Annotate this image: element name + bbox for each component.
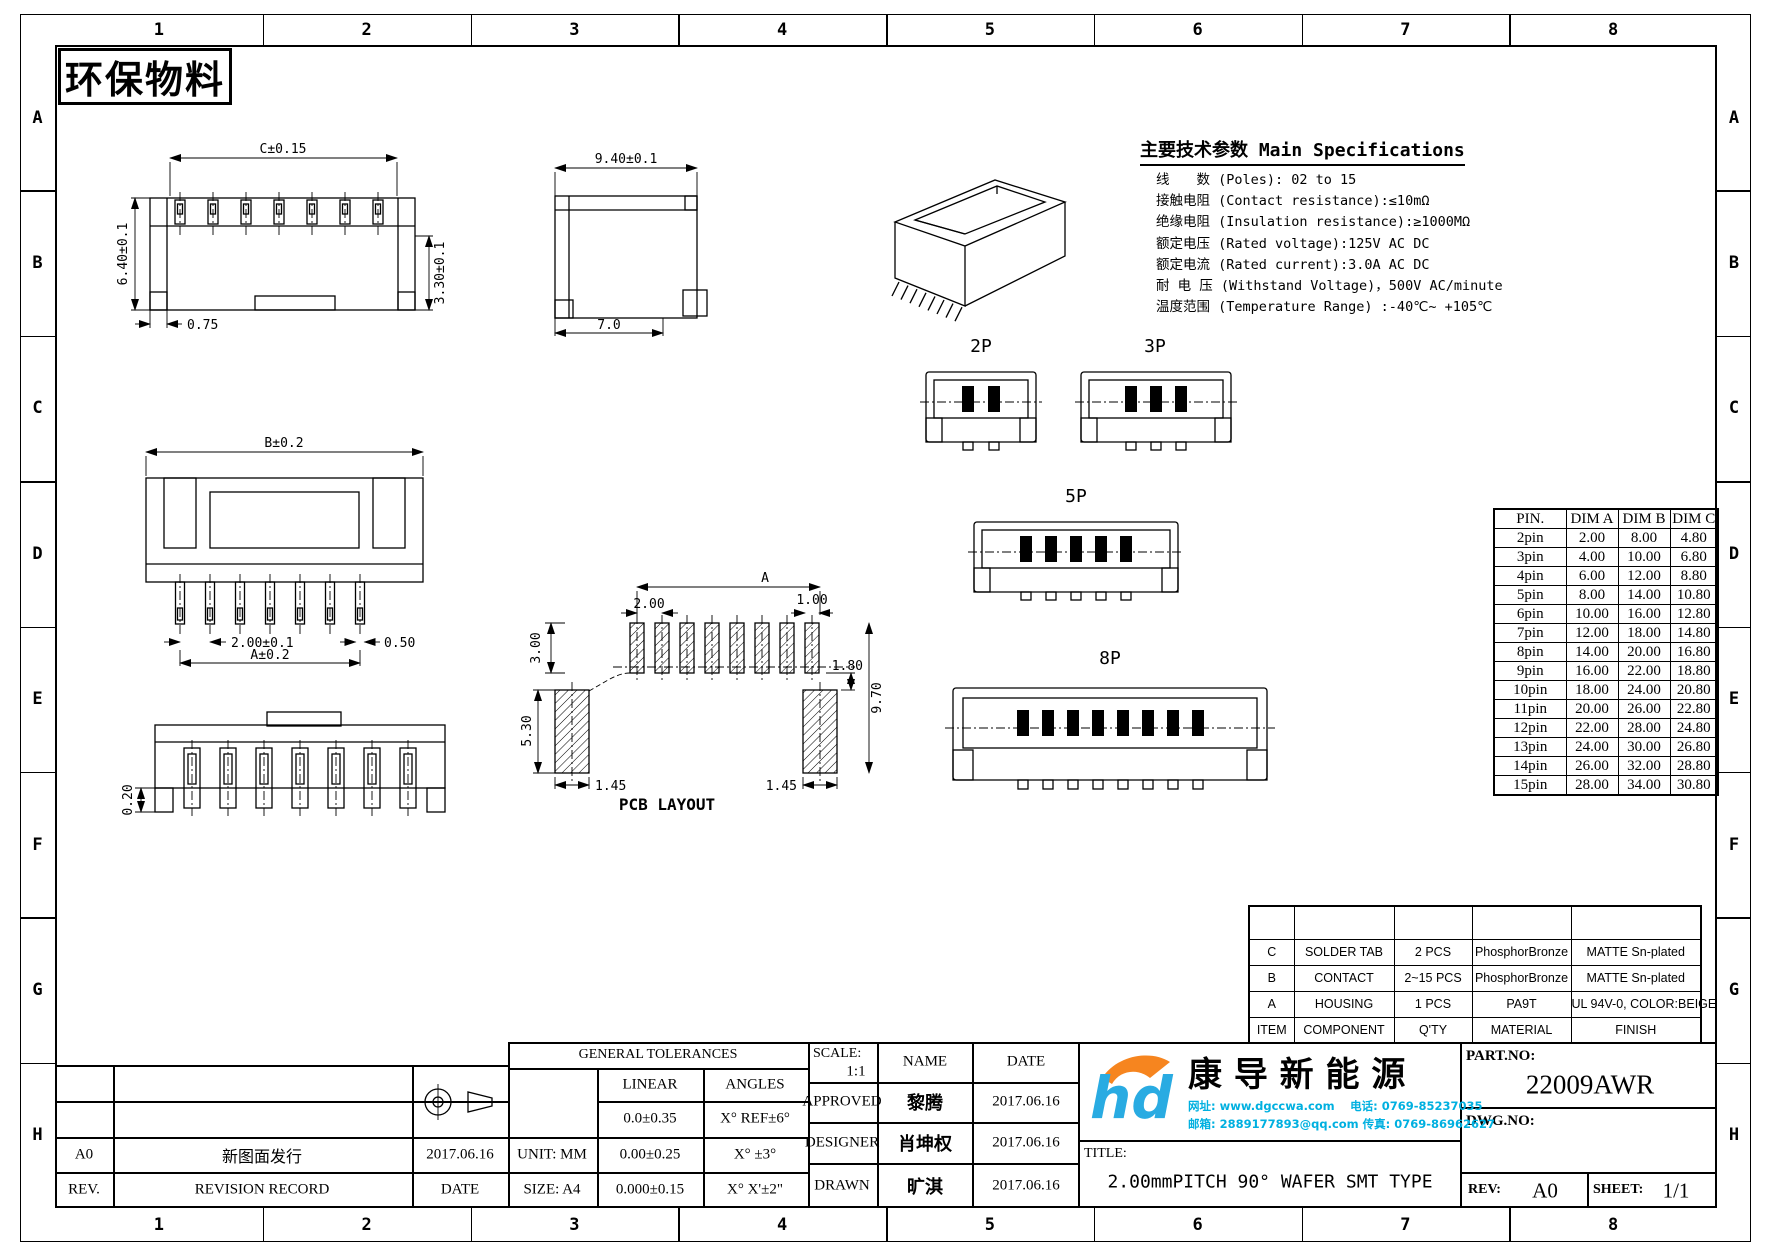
border-col-label: 3 — [471, 1211, 679, 1239]
pcb-layout-drawing: A 2.00 1.00 3.00 5.30 — [525, 555, 887, 800]
border-row-label: B — [20, 190, 55, 335]
pin-dim-table: PIN.DIM ADIM BDIM C 2pin2.008.004.803pin… — [1493, 508, 1719, 796]
svg-text:0.20: 0.20 — [121, 784, 136, 815]
border-col-label: 7 — [1302, 16, 1510, 44]
border-tick — [1717, 627, 1751, 629]
front-view-drawing: B±0.2 2.00±0.1 0.50 A±0.2 — [118, 430, 453, 670]
designer-name: 肖坤权 — [898, 1130, 952, 1156]
border-col-label: 2 — [263, 1211, 471, 1239]
border-row-label: D — [1717, 481, 1751, 626]
border-tick — [1717, 481, 1751, 483]
pin-table-row: 9pin16.0022.0018.80 — [1494, 662, 1718, 681]
pin-table-row: 12pin22.0028.0024.80 — [1494, 719, 1718, 738]
svg-text:2.00: 2.00 — [633, 597, 664, 612]
border-tick — [1717, 190, 1751, 192]
pin-table-row: 15pin28.0034.0030.80 — [1494, 776, 1718, 796]
pin-table-row: 4pin6.0012.008.80 — [1494, 567, 1718, 586]
scale-value: 1:1 — [846, 1064, 865, 1081]
tol-angle-1: X° REF±6° — [720, 1111, 790, 1128]
border-row-label: H — [20, 1063, 55, 1208]
variant-5p-drawing — [968, 508, 1184, 604]
border-tick — [1717, 336, 1751, 338]
rev-date: 2017.06.16 — [426, 1147, 494, 1164]
spec-line: 线 数 (Poles): 02 to 15 — [1140, 170, 1485, 191]
pcb-small-pads — [630, 615, 819, 681]
svg-text:6.40±0.1: 6.40±0.1 — [116, 223, 131, 286]
border-col-label: 4 — [678, 16, 886, 44]
tol-linear-2: 0.00±0.25 — [620, 1147, 681, 1164]
pin-table-header-cell: PIN. — [1494, 509, 1566, 529]
bom-row: CSOLDER TAB2 PCSPhosphorBronzeMATTE Sn-p… — [1249, 939, 1701, 965]
border-tick — [1509, 14, 1511, 45]
spec-line: 额定电流 (Rated current):3.0A AC DC — [1140, 255, 1485, 276]
front-view2-drawing: 0.20 — [115, 690, 475, 860]
spec-line: 温度范围 (Temperature Range) :-40℃~ +105℃ — [1140, 297, 1485, 318]
border-row-label: D — [20, 481, 55, 626]
approved-name: 黎腾 — [907, 1089, 943, 1115]
svg-text:1.45: 1.45 — [766, 779, 797, 794]
border-tick — [678, 1208, 680, 1242]
border-tick — [263, 14, 265, 45]
border-tick — [678, 14, 680, 45]
svg-text:0.50: 0.50 — [384, 636, 415, 651]
front-view-pins — [176, 574, 365, 636]
border-row-label: E — [20, 627, 55, 772]
border-row-label: A — [20, 45, 55, 190]
tol-linear-1: 0.0±0.35 — [623, 1111, 676, 1128]
company-logo-icon: hd — [1086, 1048, 1178, 1134]
variant-label-8p: 8P — [945, 648, 1275, 669]
border-tick — [1717, 917, 1751, 919]
scale-label: SCALE: — [813, 1046, 861, 1062]
svg-text:1.80: 1.80 — [832, 659, 863, 674]
spec-line: 接触电阻 (Contact resistance):≤10mΩ — [1140, 191, 1485, 212]
border-tick — [20, 481, 55, 483]
svg-text:B±0.2: B±0.2 — [264, 436, 303, 451]
pin-table-row: 7pin12.0018.0014.80 — [1494, 624, 1718, 643]
pin-table-row: 8pin14.0020.0016.80 — [1494, 643, 1718, 662]
date-col-label: DATE — [441, 1182, 479, 1199]
border-tick — [20, 336, 55, 338]
border-row-label: F — [20, 772, 55, 917]
svg-text:3.00: 3.00 — [529, 632, 544, 663]
spec-line: 耐 电 压 (Withstand Voltage)，500V AC/minute — [1140, 276, 1485, 297]
svg-text:0.75: 0.75 — [187, 318, 218, 333]
border-tick — [471, 14, 473, 45]
border-row-label: C — [20, 336, 55, 481]
main-specifications: 主要技术参数 Main Specifications 线 数 (Poles): … — [1140, 136, 1485, 318]
svg-text:1.45: 1.45 — [595, 779, 626, 794]
svg-text:9.70: 9.70 — [870, 682, 885, 713]
spec-line: 额定电压 (Rated voltage):125V AC DC — [1140, 234, 1485, 255]
eco-material-stamp: 环保物料 — [58, 48, 232, 105]
border-row-label: B — [1717, 190, 1751, 335]
border-col-label: 1 — [55, 1211, 263, 1239]
sheet-value: 1/1 — [1663, 1179, 1690, 1204]
rev-col-label: REV. — [68, 1182, 100, 1199]
svg-text:1.00: 1.00 — [796, 593, 827, 608]
unit-label: UNIT: MM — [517, 1147, 587, 1164]
designer-label: DESIGNER — [805, 1135, 879, 1152]
rev-value: A0 — [75, 1147, 93, 1164]
variant-label-2p: 2P — [920, 336, 1042, 357]
part-no-value: 22009AWR — [1526, 1070, 1654, 1101]
bom-table: CSOLDER TAB2 PCSPhosphorBronzeMATTE Sn-p… — [1248, 905, 1702, 1044]
iso-view-drawing — [845, 160, 1075, 330]
border-row-label: A — [1717, 45, 1751, 190]
border-tick — [20, 1063, 55, 1065]
pin-table-row: 6pin10.0016.0012.80 — [1494, 605, 1718, 624]
rev-value2: A0 — [1532, 1179, 1558, 1204]
front-view2-pads — [184, 740, 416, 816]
part-no-label: PART.NO: — [1466, 1048, 1535, 1065]
svg-text:5.30: 5.30 — [520, 715, 535, 746]
border-col-label: 4 — [678, 1211, 886, 1239]
border-row-label: G — [1717, 917, 1751, 1062]
date-col-label2: DATE — [1007, 1054, 1045, 1071]
svg-text:A: A — [761, 571, 769, 586]
tol-angle-2: X° ±3° — [734, 1147, 776, 1164]
pin-table-row: 10pin18.0024.0020.80 — [1494, 681, 1718, 700]
end-view-drawing: 9.40±0.1 7.0 — [535, 150, 715, 345]
name-col-label: NAME — [903, 1054, 947, 1071]
spec-line: 绝缘电阻 (Insulation resistance):≥1000MΩ — [1140, 212, 1485, 233]
svg-text:hd: hd — [1090, 1064, 1173, 1132]
pin-table-row: 13pin24.0030.0026.80 — [1494, 738, 1718, 757]
iso-view-pins — [892, 282, 962, 321]
tol-angle-3: X° X'±2" — [727, 1182, 783, 1199]
border-tick — [1302, 14, 1304, 45]
border-tick — [20, 627, 55, 629]
specs-title: 主要技术参数 Main Specifications — [1140, 136, 1465, 166]
border-tick — [1509, 1208, 1511, 1242]
svg-text:7.0: 7.0 — [597, 318, 620, 333]
bom-row: AHOUSING1 PCSPA9TUL 94V-0, COLOR:BEIGE — [1249, 991, 1701, 1017]
tol-linear-3: 0.000±0.15 — [616, 1182, 684, 1199]
border-col-label: 6 — [1094, 1211, 1302, 1239]
border-tick — [20, 190, 55, 192]
drawn-label: DRAWN — [814, 1178, 869, 1195]
svg-text:9.40±0.1: 9.40±0.1 — [595, 152, 658, 167]
svg-text:3.30±0.1: 3.30±0.1 — [433, 242, 448, 305]
pin-table-row: 14pin26.0032.0028.80 — [1494, 757, 1718, 776]
bom-row: ITEMCOMPONENTQ'TYMATERIALFINISH — [1249, 1017, 1701, 1043]
drawn-date: 2017.06.16 — [992, 1178, 1060, 1195]
pin-table-header-cell: DIM A — [1566, 509, 1618, 529]
drawn-name: 旷淇 — [907, 1173, 943, 1199]
variant-label-5p: 5P — [968, 486, 1184, 507]
pin-table-header-cell: DIM B — [1618, 509, 1670, 529]
svg-text:C±0.15: C±0.15 — [260, 142, 307, 157]
projection-symbols-icon — [420, 1078, 504, 1126]
pin-table-row: 5pin8.0014.0010.80 — [1494, 586, 1718, 605]
title-label: TITLE: — [1084, 1146, 1127, 1162]
approved-date: 2017.06.16 — [992, 1094, 1060, 1111]
rev-label: REV: — [1468, 1182, 1501, 1198]
border-tick — [1302, 1208, 1304, 1242]
border-col-label: 5 — [886, 16, 1094, 44]
svg-text:A±0.2: A±0.2 — [250, 648, 289, 663]
variant-8p-drawing — [945, 672, 1275, 794]
variant-label-3p: 3P — [1075, 336, 1235, 357]
border-tick — [263, 1208, 265, 1242]
sheet-label: SHEET: — [1593, 1182, 1643, 1198]
bom-row: BCONTACT2~15 PCSPhosphorBronzeMATTE Sn-p… — [1249, 965, 1701, 991]
border-col-label: 2 — [263, 16, 471, 44]
border-col-label: 7 — [1302, 1211, 1510, 1239]
border-tick — [1717, 772, 1751, 774]
border-col-label: 8 — [1509, 1211, 1717, 1239]
pin-table-row: 3pin4.0010.006.80 — [1494, 548, 1718, 567]
border-tick — [1094, 1208, 1096, 1242]
side-view-drawing: C±0.15 6.40±0.1 3.30±0.1 0.75 — [95, 140, 450, 340]
border-row-label: F — [1717, 772, 1751, 917]
drawing-title: 2.00mmPITCH 90° WAFER SMT TYPE — [1107, 1172, 1432, 1193]
approved-label: APPROVED — [802, 1094, 881, 1111]
border-row-label: H — [1717, 1063, 1751, 1208]
pin-table-row: 2pin2.008.004.80 — [1494, 529, 1718, 548]
revision-record-label: REVISION RECORD — [195, 1182, 330, 1199]
pin-table-header-cell: DIM C — [1670, 509, 1718, 529]
border-col-label: 1 — [55, 16, 263, 44]
border-tick — [20, 917, 55, 919]
border-row-label: C — [1717, 336, 1751, 481]
border-tick — [20, 772, 55, 774]
bom-row — [1249, 906, 1701, 939]
pin-table-header: PIN.DIM ADIM BDIM C — [1494, 509, 1718, 529]
border-col-label: 6 — [1094, 16, 1302, 44]
tol-angles-label: ANGLES — [725, 1077, 784, 1094]
rev-record: 新图面发行 — [222, 1143, 302, 1167]
drawing-sheet: 1122334455667788AABBCCDDEEFFGGHH 环保物料 主要… — [0, 0, 1778, 1257]
company-contact-line1: 网址: www.dgccwa.com 电话: 0769-85237035 — [1188, 1098, 1456, 1114]
border-row-label: G — [20, 917, 55, 1062]
border-tick — [1094, 14, 1096, 45]
border-tick — [471, 1208, 473, 1242]
size-label: SIZE: A4 — [523, 1182, 580, 1199]
company-contact-line2: 邮箱: 2889177893@qq.com 传真: 0769-86962627 — [1188, 1116, 1456, 1132]
border-row-label: E — [1717, 627, 1751, 772]
tol-linear-label: LINEAR — [623, 1077, 678, 1094]
pcb-layout-label: PCB LAYOUT — [592, 795, 742, 814]
border-col-label: 3 — [471, 16, 679, 44]
border-col-label: 5 — [886, 1211, 1094, 1239]
tolerances-title: GENERAL TOLERANCES — [579, 1047, 738, 1063]
border-col-label: 8 — [1509, 16, 1717, 44]
designer-date: 2017.06.16 — [992, 1135, 1060, 1152]
border-tick — [886, 14, 888, 45]
variant-2p-drawing — [920, 358, 1042, 454]
pin-table-row: 11pin20.0026.0022.80 — [1494, 700, 1718, 719]
border-tick — [1717, 1063, 1751, 1065]
company-name: 康 导 新 能 源 — [1188, 1050, 1456, 1092]
variant-3p-drawing — [1075, 358, 1237, 454]
border-tick — [886, 1208, 888, 1242]
